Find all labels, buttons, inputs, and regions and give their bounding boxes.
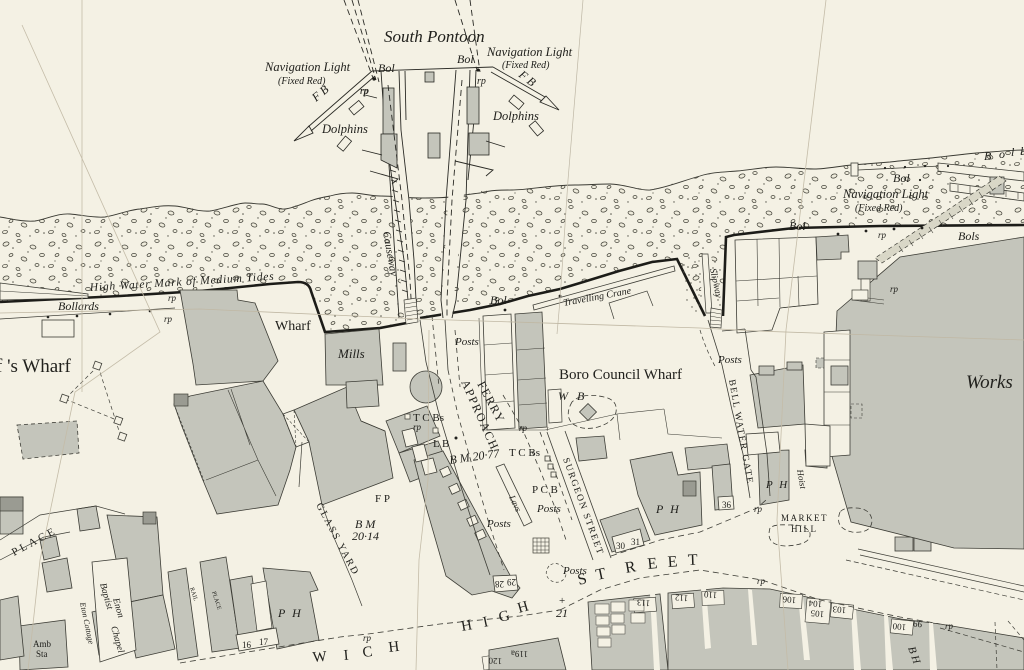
svg-text:120: 120 [488, 656, 502, 666]
svg-text:rp: rp [168, 293, 177, 303]
svg-text:Posts: Posts [454, 336, 479, 348]
svg-text:119a: 119a [511, 649, 529, 660]
svg-text:f 's Wharf: f 's Wharf [0, 356, 71, 377]
svg-text:Mills: Mills [337, 346, 365, 361]
svg-text:W: W [312, 649, 328, 666]
svg-text:Bol: Bol [490, 293, 507, 307]
svg-text:99: 99 [912, 619, 922, 630]
svg-text:W B: W B [558, 389, 587, 403]
svg-text:Posts: Posts [717, 354, 742, 366]
svg-text:30: 30 [616, 541, 626, 551]
svg-text:29: 29 [507, 577, 517, 587]
svg-text:Navigation Light: Navigation Light [486, 45, 573, 59]
svg-text:Bol: Bol [789, 219, 806, 233]
svg-text:rp: rp [757, 576, 766, 586]
svg-text:113: 113 [636, 597, 650, 608]
svg-text:Dolphins: Dolphins [492, 109, 539, 123]
svg-text:P C B: P C B [532, 484, 558, 496]
svg-text:H: H [388, 639, 401, 656]
svg-text:28: 28 [495, 579, 505, 589]
svg-text:F P: F P [375, 493, 390, 505]
svg-text:Navigation Light: Navigation Light [842, 187, 929, 201]
svg-text:17: 17 [259, 637, 269, 647]
svg-text:P H: P H [655, 502, 681, 516]
svg-text:106: 106 [782, 594, 797, 605]
svg-text:South Pontoon: South Pontoon [384, 27, 485, 46]
svg-text:T: T [688, 552, 699, 569]
svg-text:C: C [362, 644, 374, 661]
svg-text:(Fixed Red): (Fixed Red) [855, 203, 903, 214]
svg-text:16: 16 [242, 640, 252, 650]
svg-text:110: 110 [703, 589, 717, 600]
svg-text:MARKET: MARKET [781, 513, 828, 523]
svg-text:103: 103 [832, 604, 847, 615]
svg-text:rp: rp [477, 76, 486, 87]
svg-text:E: E [667, 553, 678, 571]
svg-text:rp: rp [945, 621, 954, 631]
svg-text:Works: Works [966, 372, 1013, 393]
svg-text:rp: rp [164, 314, 173, 324]
svg-text:o: o [999, 147, 1005, 161]
svg-text:Boro Council Wharf: Boro Council Wharf [559, 367, 682, 383]
svg-text:Wharf: Wharf [275, 319, 311, 334]
svg-text:Navigation Light: Navigation Light [264, 60, 351, 74]
svg-text:Bol: Bol [378, 61, 395, 75]
svg-text:rp: rp [363, 633, 372, 643]
svg-text:Bol: Bol [457, 52, 474, 66]
svg-text:rp: rp [754, 504, 763, 514]
svg-text:Bol: Bol [893, 171, 910, 185]
svg-text:L B: L B [433, 438, 449, 450]
svg-text:Posts: Posts [536, 503, 561, 515]
svg-text:105: 105 [810, 608, 825, 619]
svg-text:rp: rp [878, 230, 887, 240]
svg-text:T C Bs: T C Bs [509, 447, 540, 459]
svg-text:B: B [984, 149, 992, 163]
svg-text:112: 112 [675, 592, 689, 603]
svg-text:P H: P H [765, 479, 789, 491]
svg-text:20·14: 20·14 [352, 529, 379, 543]
svg-text:Posts: Posts [486, 518, 511, 530]
svg-text:36: 36 [722, 500, 732, 510]
svg-text:Bols: Bols [958, 229, 980, 243]
svg-text:Dolphins: Dolphins [321, 122, 368, 136]
svg-text:104: 104 [808, 598, 823, 609]
svg-text:rp: rp [890, 284, 899, 294]
svg-text:31: 31 [631, 537, 640, 547]
svg-text:rp: rp [413, 422, 422, 432]
svg-text:rp: rp [360, 86, 369, 96]
svg-text:rp: rp [519, 423, 528, 433]
svg-text:Amb: Amb [33, 639, 52, 649]
svg-text:Sta: Sta [36, 649, 48, 659]
svg-text:100: 100 [892, 621, 907, 632]
svg-text:P H: P H [277, 606, 303, 620]
svg-text:E: E [647, 555, 659, 573]
svg-text:21: 21 [556, 606, 568, 620]
svg-text:HILL: HILL [791, 524, 818, 534]
